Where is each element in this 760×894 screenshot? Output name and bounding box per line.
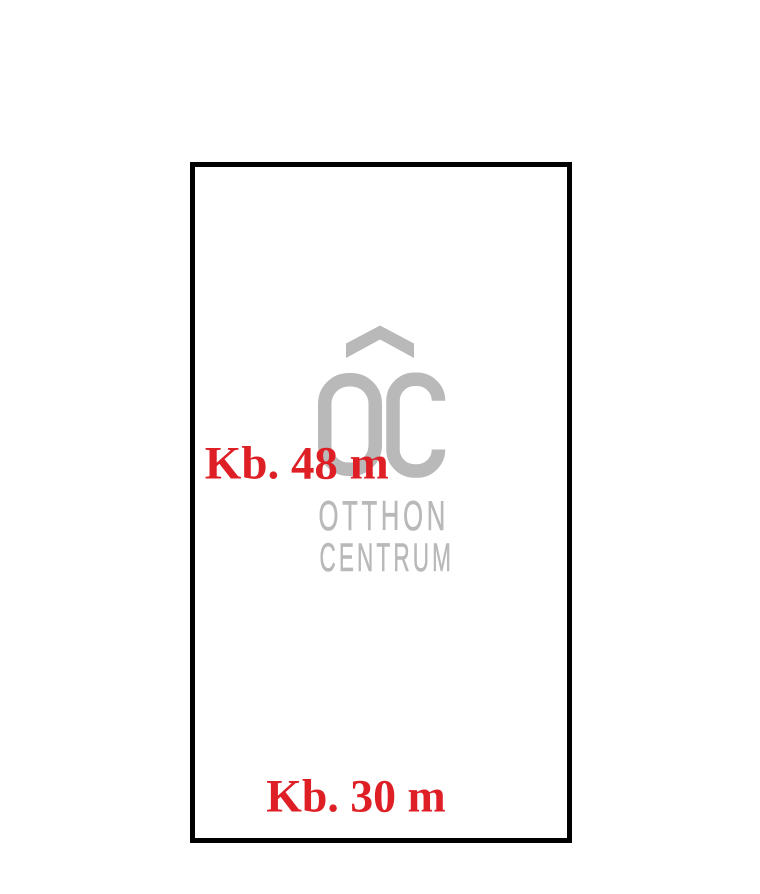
svg-text:Kb. 30 m: Kb. 30 m	[266, 772, 446, 823]
svg-text:Kb. 48 m: Kb. 48 m	[205, 438, 389, 489]
svg-text:OTTHON: OTTHON	[319, 492, 450, 539]
svg-text:CENTRUM: CENTRUM	[320, 536, 455, 580]
